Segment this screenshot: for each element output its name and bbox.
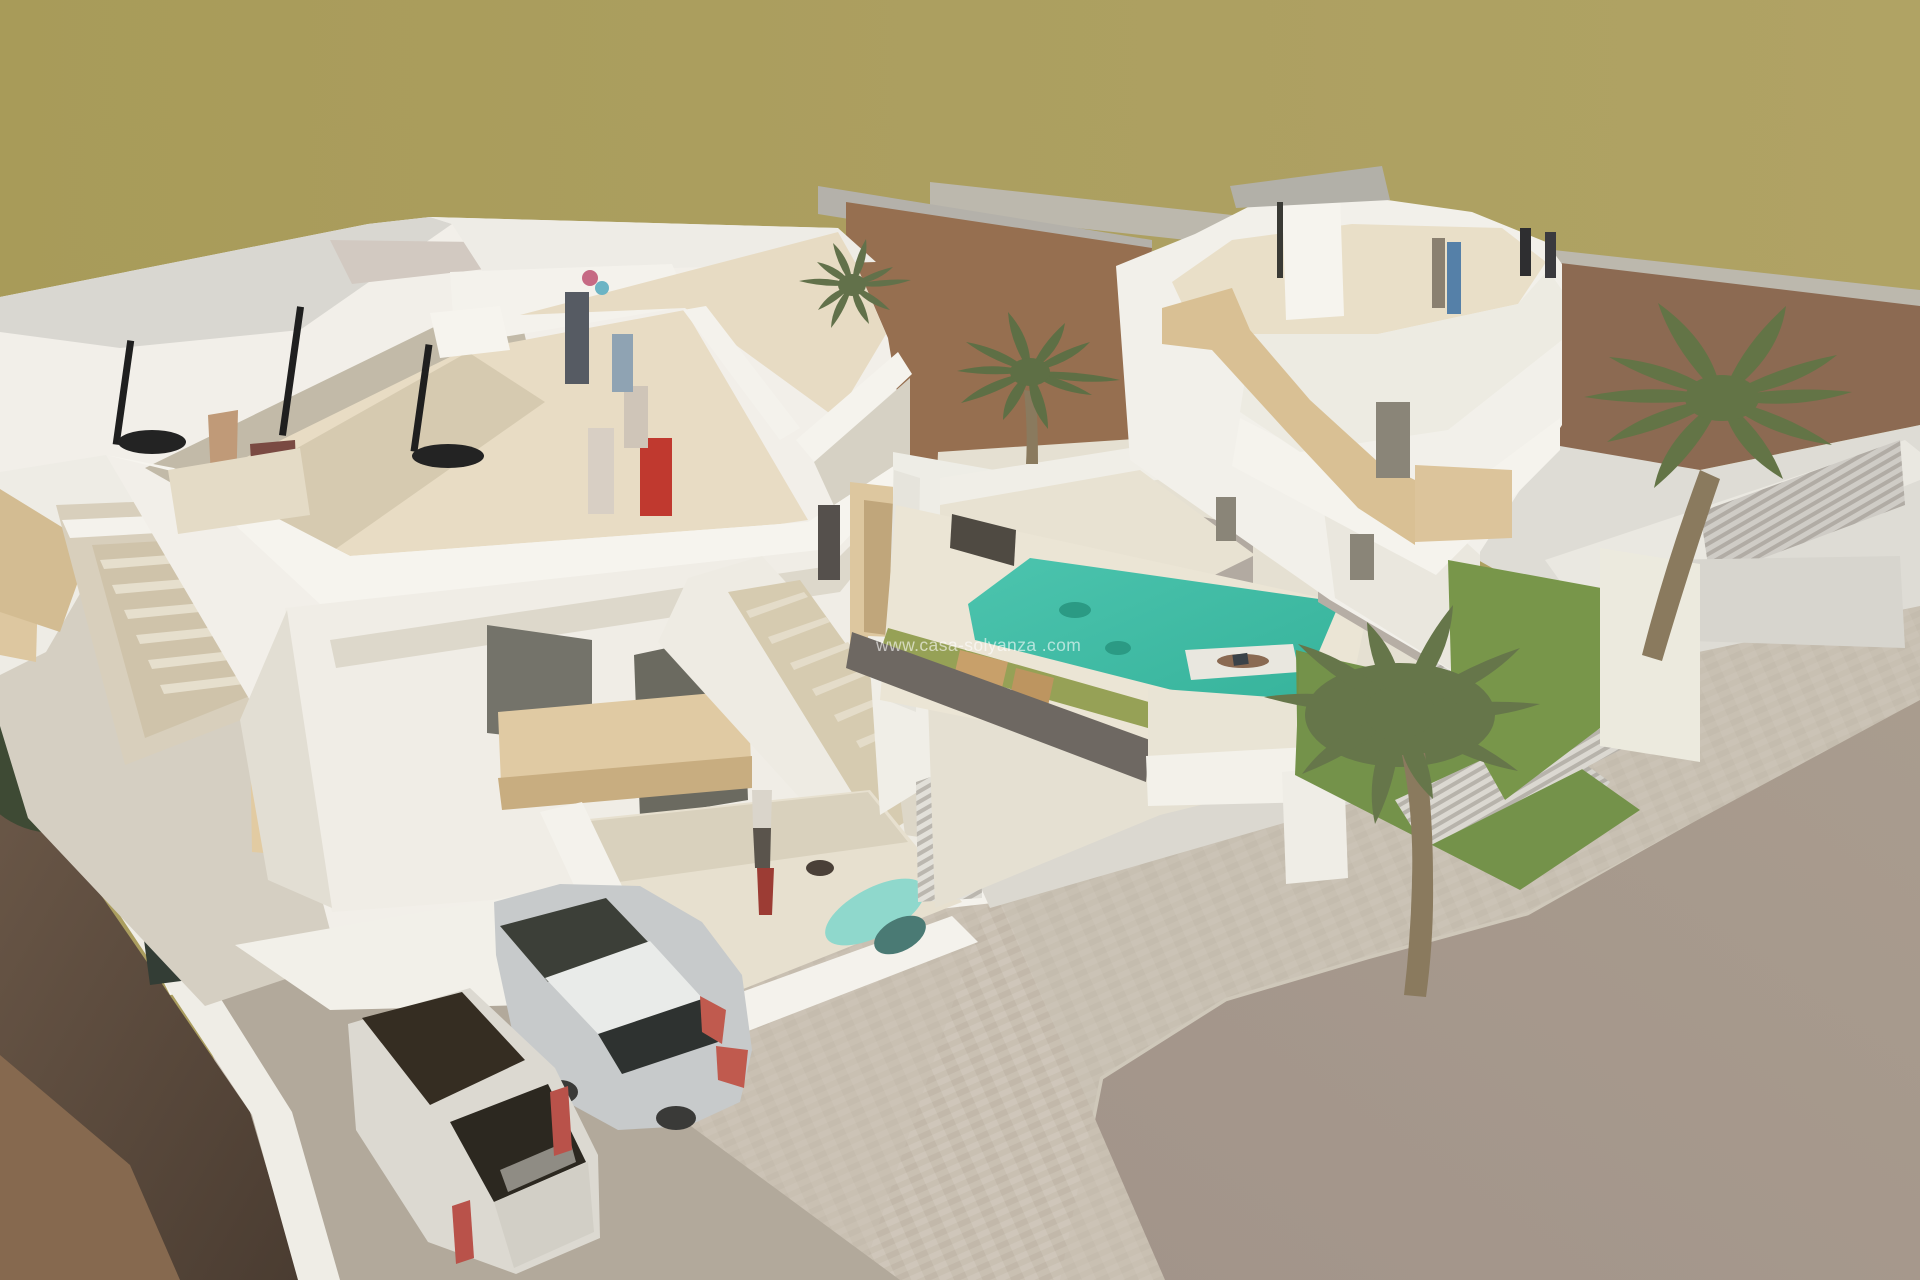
svg-text:www.casa-solyanza .com: www.casa-solyanza .com [875,635,1081,655]
